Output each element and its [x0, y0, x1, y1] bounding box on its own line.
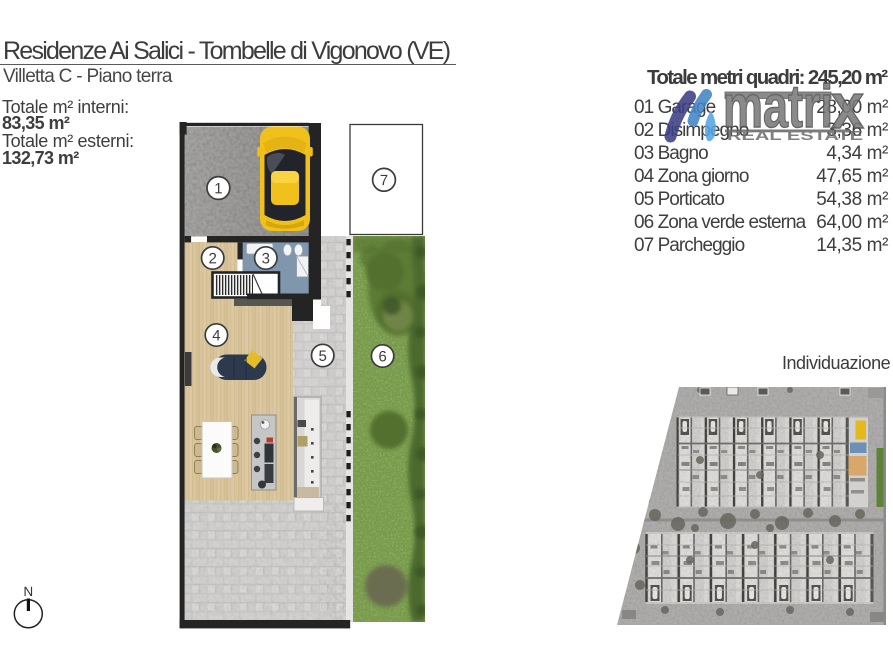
svg-text:REAL ESTATE: REAL ESTATE: [727, 129, 863, 143]
